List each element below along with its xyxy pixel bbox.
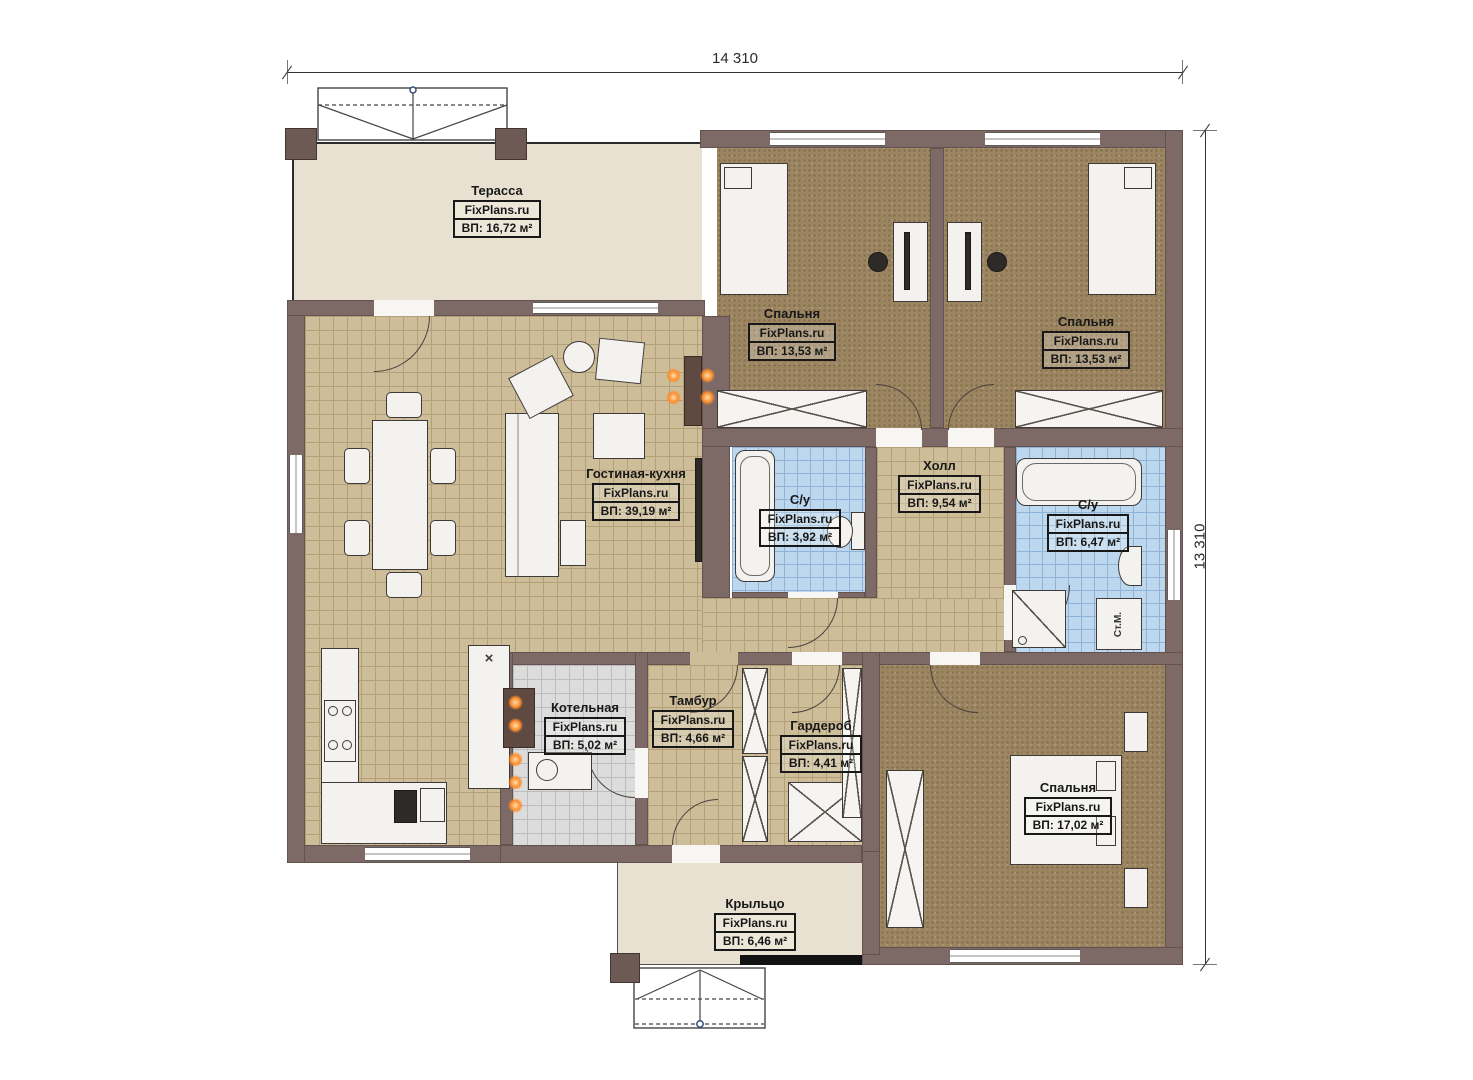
- room-area: ВП: 4,66 м²: [654, 730, 733, 746]
- window: [950, 949, 1080, 963]
- heat-glow: [666, 368, 681, 383]
- watermark: FixPlans.ru: [900, 477, 979, 495]
- dimension-line-top: [287, 72, 1183, 73]
- room-name: Гардероб: [790, 718, 851, 733]
- room-area: ВП: 17,02 м²: [1026, 817, 1111, 833]
- heat-glow: [508, 798, 523, 813]
- watermark: FixPlans.ru: [750, 325, 835, 343]
- watermark: FixPlans.ru: [594, 485, 679, 503]
- room-name: Крыльцо: [725, 896, 784, 911]
- chair: [386, 392, 422, 418]
- window: [770, 132, 885, 146]
- room-area: ВП: 5,02 м²: [546, 737, 625, 753]
- wall: [862, 845, 880, 955]
- entrance-door-opening: [672, 845, 720, 863]
- chair: [344, 448, 370, 484]
- heat-glow: [508, 775, 523, 790]
- chair: [344, 520, 370, 556]
- room-area: ВП: 3,92 м²: [761, 529, 840, 545]
- shower-drain: [1018, 636, 1027, 645]
- door-opening: [635, 748, 648, 798]
- room-area: ВП: 6,47 м²: [1049, 534, 1128, 550]
- sofa: [505, 413, 559, 577]
- door-opening: [876, 428, 922, 447]
- room-name: Спальня: [1040, 780, 1096, 795]
- room-area: ВП: 16,72 м²: [455, 220, 540, 236]
- sink: [1118, 546, 1142, 586]
- door-opening: [948, 428, 994, 447]
- room-label-living: Гостиная-кухня FixPlans.ru ВП: 39,19 м²: [556, 466, 716, 521]
- porch-post: [610, 953, 640, 983]
- room-label-bath2: С/у FixPlans.ru ВП: 6,47 м²: [1023, 497, 1153, 552]
- window: [533, 302, 658, 314]
- burner: [328, 706, 338, 716]
- wall: [702, 428, 1183, 447]
- watermark: FixPlans.ru: [716, 915, 795, 933]
- room-area: ВП: 13,53 м²: [1044, 351, 1129, 367]
- watermark: FixPlans.ru: [1026, 799, 1111, 817]
- side-table: [563, 341, 595, 373]
- room-name: Спальня: [764, 306, 820, 321]
- room-name: Котельная: [551, 700, 619, 715]
- window: [1167, 530, 1181, 600]
- window: [365, 847, 470, 861]
- chair: [430, 520, 456, 556]
- watermark: FixPlans.ru: [1049, 516, 1128, 534]
- floor-corridor: [702, 598, 1004, 652]
- wardrobe-unit: [717, 390, 867, 428]
- room-label-bath1: С/у FixPlans.ru ВП: 3,92 м²: [745, 492, 855, 547]
- terrace-post: [495, 128, 527, 160]
- office-chair: [868, 252, 888, 272]
- office-chair: [987, 252, 1007, 272]
- room-name: Спальня: [1058, 314, 1114, 329]
- watermark: FixPlans.ru: [782, 737, 861, 755]
- room-label-porch: Крыльцо FixPlans.ru ВП: 6,46 м²: [690, 896, 820, 951]
- ottoman: [560, 520, 586, 566]
- bathtub-inner: [1022, 463, 1136, 501]
- armchair: [595, 338, 645, 385]
- burner: [328, 740, 338, 750]
- dimension-label-right: 13 310: [1192, 497, 1209, 597]
- nightstand: [1124, 868, 1148, 908]
- monitor: [965, 232, 971, 290]
- wardrobe-unit: [886, 770, 924, 928]
- burner: [342, 740, 352, 750]
- heat-glow: [666, 390, 681, 405]
- wall: [287, 300, 305, 863]
- window: [985, 132, 1100, 146]
- fridge: [394, 790, 417, 823]
- pillow: [1124, 167, 1152, 189]
- nightstand: [1124, 712, 1148, 752]
- washing-machine-label: Ст.М.: [1113, 611, 1124, 636]
- canopy-bottom: [633, 966, 767, 1032]
- watermark: FixPlans.ru: [761, 511, 840, 529]
- heat-glow: [700, 390, 715, 405]
- room-name: Тамбур: [669, 693, 716, 708]
- dimension-label-top: 14 310: [685, 50, 785, 67]
- watermark: FixPlans.ru: [1044, 333, 1129, 351]
- coffee-table: [593, 413, 645, 459]
- room-label-tambour: Тамбур FixPlans.ru ВП: 4,66 м²: [628, 693, 758, 748]
- desk: [893, 222, 928, 302]
- room-label-wardrobe: Гардероб FixPlans.ru ВП: 4,41 м²: [756, 718, 886, 773]
- door-opening: [690, 652, 738, 665]
- door-opening: [930, 652, 980, 665]
- room-name: Холл: [923, 458, 956, 473]
- room-name: С/у: [1078, 497, 1098, 512]
- cabinet-x-marker: ×: [468, 650, 510, 667]
- porch-edge: [740, 955, 862, 965]
- room-area: ВП: 6,46 м²: [716, 933, 795, 949]
- watermark: FixPlans.ru: [455, 202, 540, 220]
- watermark: FixPlans.ru: [546, 719, 625, 737]
- wall: [505, 652, 1183, 665]
- dining-table: [372, 420, 428, 570]
- door-opening: [374, 300, 434, 316]
- room-label-bedroom2: Спальня FixPlans.ru ВП: 13,53 м²: [1006, 314, 1166, 369]
- burner: [342, 706, 352, 716]
- room-area: ВП: 9,54 м²: [900, 495, 979, 511]
- room-label-bedroom3: Спальня FixPlans.ru ВП: 17,02 м²: [998, 780, 1138, 835]
- door-opening: [792, 652, 842, 665]
- watermark: FixPlans.ru: [654, 712, 733, 730]
- wall: [930, 148, 944, 428]
- kitchen-sink: [420, 788, 445, 822]
- chair: [430, 448, 456, 484]
- chair: [386, 572, 422, 598]
- room-label-terrace: Терасса FixPlans.ru ВП: 16,72 м²: [417, 183, 577, 238]
- heat-glow: [700, 368, 715, 383]
- room-area: ВП: 13,53 м²: [750, 343, 835, 359]
- floor-plan: 14 310 13 310: [0, 0, 1473, 1080]
- room-name: Терасса: [471, 183, 523, 198]
- monitor: [904, 232, 910, 290]
- room-area: ВП: 4,41 м²: [782, 755, 861, 771]
- wardrobe-unit: [1015, 390, 1163, 428]
- terrace-post: [285, 128, 317, 160]
- room-label-bedroom1: Спальня FixPlans.ru ВП: 13,53 м²: [712, 306, 872, 361]
- room-name: Гостиная-кухня: [586, 466, 686, 481]
- room-name: С/у: [790, 492, 810, 507]
- canopy-top: [317, 86, 509, 143]
- fireplace: [684, 356, 702, 426]
- room-area: ВП: 39,19 м²: [594, 503, 679, 519]
- window: [289, 455, 303, 533]
- pillow: [724, 167, 752, 189]
- basin: [536, 759, 558, 781]
- washing-machine: Ст.М.: [1096, 598, 1142, 650]
- room-label-hall: Холл FixPlans.ru ВП: 9,54 м²: [867, 458, 1012, 513]
